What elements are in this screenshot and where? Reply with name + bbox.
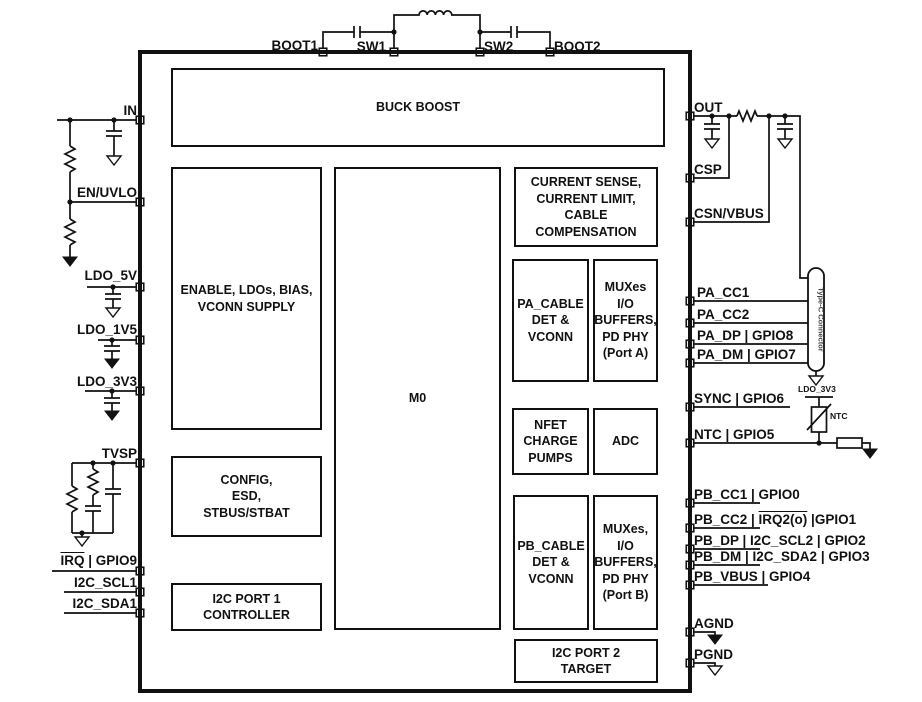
pin-label-ntc-gpio5: NTC | GPIO5 — [694, 428, 774, 442]
pin-label-pb-vbus-gpio4: PB_VBUS | GPIO4 — [694, 570, 810, 584]
ground-open-icon — [107, 156, 121, 165]
pin-label-ldo-5v: LDO_5V — [84, 269, 137, 283]
ground-open-icon — [106, 308, 120, 317]
ground-open-icon — [75, 537, 89, 546]
ldo3v3-rail-label: LDO_3V3 — [798, 385, 836, 394]
pin-label-irq-gpio9: IRQ | GPIO9 — [60, 554, 137, 568]
pin-label-ldo-1v5: LDO_1V5 — [77, 323, 137, 337]
block-nfet-charge-pumps: NFET CHARGE PUMPS — [512, 408, 589, 475]
ldo1v5-decoupling — [98, 340, 140, 368]
pin-label-pgnd: PGND — [694, 648, 733, 662]
block-adc: ADC — [593, 408, 658, 475]
inductor — [394, 11, 480, 52]
pin-label-csp: CSP — [694, 163, 722, 177]
pin-label-sw2: SW2 — [484, 40, 513, 54]
resistor-box-icon — [837, 438, 862, 448]
ground-open-icon — [708, 666, 722, 675]
pin-label-i2c-sda1: I2C_SDA1 — [72, 597, 137, 611]
pgnd-ground — [690, 663, 722, 675]
pin-label-out: OUT — [694, 101, 723, 115]
pin-label-pa-dp-gpio8: PA_DP | GPIO8 — [697, 329, 793, 343]
block-buck-boost: BUCK BOOST — [171, 68, 665, 147]
ground-filled-icon — [863, 449, 877, 458]
ntc-thermistor-label: NTC — [830, 412, 847, 421]
block-config-esd: CONFIG, ESD, STBUS/STBAT — [171, 456, 322, 537]
block-m0-core: M0 — [334, 167, 501, 630]
block-pa-cable-det: PA_CABLE DET & VCONN — [512, 259, 589, 382]
pin-label-pb-cc2-irq2-gpio1: PB_CC2 | IRQ2(o) |GPIO1 — [694, 513, 856, 527]
pin-label-pb-dp-scl2-gpio2: PB_DP | I2C_SCL2 | GPIO2 — [694, 534, 866, 548]
resistor-icon — [67, 463, 77, 533]
block-i2c-port1-controller: I2C PORT 1 CONTROLLER — [171, 583, 322, 631]
ground-filled-icon — [105, 411, 119, 420]
type-c-connector-label: Type-C Connector — [817, 287, 826, 352]
resistor-icon — [65, 202, 75, 257]
agnd-ground — [690, 632, 722, 644]
en-uvlo-divider — [63, 202, 140, 266]
ldo3v3-decoupling — [85, 391, 140, 420]
pin-label-sync-gpio6: SYNC | GPIO6 — [694, 392, 784, 406]
block-mux-pd-phy-port-b: MUXes, I/O BUFFERS, PD PHY (Port B) — [593, 495, 658, 630]
irq-overlined: IRQ — [60, 553, 84, 568]
pin-label-csn-vbus: CSN/VBUS — [694, 207, 764, 221]
pin-label-i2c-scl1: I2C_SCL1 — [74, 576, 137, 590]
capacitor-icon — [105, 463, 121, 533]
pin-label-pb-cc1-gpio0: PB_CC1 | GPIO0 — [694, 488, 800, 502]
pin-label-boot2: BOOT2 — [554, 40, 601, 54]
out-sense-network — [690, 111, 812, 278]
tvsp-network — [67, 463, 140, 546]
pin-label-pa-cc1: PA_CC1 — [697, 286, 749, 300]
sense-resistor-icon — [737, 111, 757, 121]
pin-label-en-uvlo: EN/UVLO — [77, 186, 137, 200]
block-pb-cable-det: PB_CABLE DET & VCONN — [513, 495, 589, 630]
block-diagram: Type-C Connector — [0, 0, 922, 702]
pin-label-ldo-3v3: LDO_3V3 — [77, 375, 137, 389]
pin-label-sw1: SW1 — [357, 40, 386, 54]
irq2-overlined: IRQ2(o) — [759, 512, 808, 527]
pin-label-pa-cc2: PA_CC2 — [697, 308, 749, 322]
ground-filled-icon — [708, 635, 722, 644]
pin-label-pa-dm-gpio7: PA_DM | GPIO7 — [697, 348, 796, 362]
ground-filled-icon — [63, 257, 77, 266]
block-current-sense: CURRENT SENSE, CURRENT LIMIT, CABLE COMP… — [514, 167, 658, 247]
ground-open-icon — [778, 139, 792, 148]
ldo5v-decoupling — [87, 287, 140, 317]
pin-label-boot1: BOOT1 — [271, 39, 318, 53]
pin-label-tvsp: TVSP — [102, 447, 137, 461]
pin-label-pb-dm-sda2-gpio3: PB_DM | I2C_SDA2 | GPIO3 — [694, 550, 870, 564]
block-i2c-port2-target: I2C PORT 2 TARGET — [514, 639, 658, 683]
pin-label-agnd: AGND — [694, 617, 734, 631]
resistor-capacitor-branch — [85, 463, 101, 533]
block-mux-pd-phy-port-a: MUXes I/O BUFFERS, PD PHY (Port A) — [593, 259, 658, 382]
resistor-icon — [65, 120, 75, 202]
ground-filled-icon — [105, 359, 119, 368]
pin-label-in: IN — [124, 104, 138, 118]
ground-open-icon — [705, 139, 719, 148]
block-enable-ldo-bias-vconn: ENABLE, LDOs, BIAS, VCONN SUPPLY — [171, 167, 322, 430]
type-c-connector: Type-C Connector — [808, 268, 826, 385]
